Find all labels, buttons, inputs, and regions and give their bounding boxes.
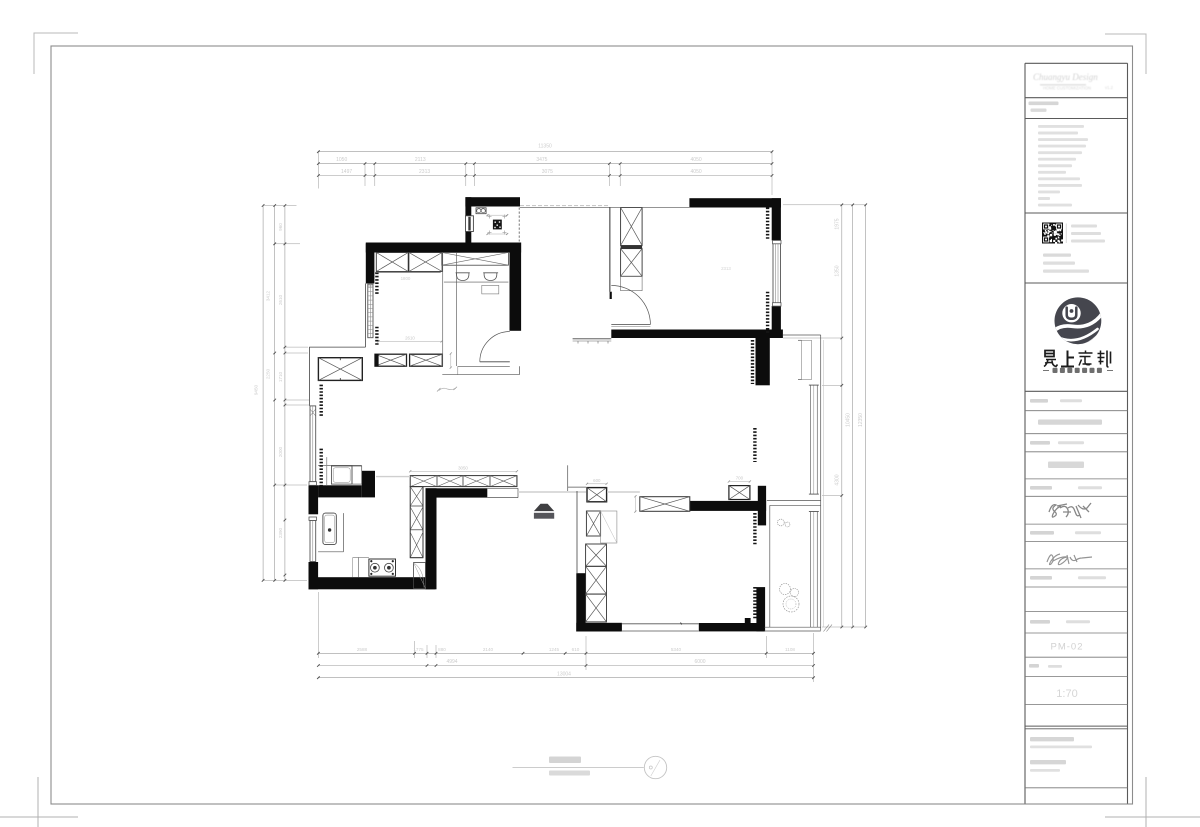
svg-text:2140: 2140: [483, 647, 494, 652]
svg-text:600: 600: [593, 478, 601, 483]
svg-text:13004: 13004: [557, 671, 571, 677]
svg-text:3075: 3075: [542, 169, 553, 175]
svg-text:4050: 4050: [691, 169, 702, 175]
svg-text:1245: 1245: [549, 647, 560, 652]
svg-text:2390: 2390: [278, 527, 283, 538]
svg-text:960: 960: [278, 223, 283, 231]
svg-text:1497: 1497: [341, 169, 352, 175]
svg-text:1775: 1775: [413, 647, 424, 652]
svg-text:4050: 4050: [691, 157, 702, 163]
svg-text:3050: 3050: [458, 465, 468, 470]
svg-text:11350: 11350: [538, 144, 552, 150]
svg-text:4994: 4994: [446, 659, 457, 665]
svg-text:1710: 1710: [278, 371, 283, 382]
svg-text:1350: 1350: [835, 265, 841, 276]
svg-text:2000: 2000: [278, 446, 283, 457]
svg-text:10450: 10450: [846, 413, 852, 427]
svg-text:2250: 2250: [266, 368, 271, 379]
svg-text:610: 610: [572, 647, 580, 652]
svg-text:2610: 2610: [405, 336, 415, 341]
svg-text:PM-02: PM-02: [1051, 642, 1084, 653]
svg-text:Chuangyu Design: Chuangyu Design: [1033, 72, 1098, 82]
svg-text:1975: 1975: [835, 218, 841, 229]
svg-text:2313: 2313: [721, 266, 731, 271]
svg-text:6000: 6000: [694, 659, 705, 665]
svg-text:1800: 1800: [401, 276, 411, 281]
svg-text:3475: 3475: [536, 157, 547, 163]
svg-text:2610: 2610: [278, 294, 283, 305]
svg-text:2588: 2588: [357, 647, 368, 652]
svg-text:v1.2: v1.2: [1105, 85, 1114, 90]
svg-text:700: 700: [736, 476, 744, 481]
svg-text:1:70: 1:70: [1056, 688, 1077, 700]
svg-text:1108: 1108: [785, 647, 795, 652]
svg-text:3412: 3412: [266, 290, 271, 301]
svg-text:4300: 4300: [835, 474, 841, 485]
svg-text:5340: 5340: [671, 647, 682, 652]
svg-text:2113: 2113: [415, 157, 426, 163]
svg-text:9450: 9450: [254, 384, 259, 395]
svg-text:12350: 12350: [858, 413, 864, 427]
svg-text:880: 880: [438, 647, 446, 652]
svg-text:1050: 1050: [336, 157, 347, 163]
svg-text:HOME CUSTOMIZATION: HOME CUSTOMIZATION: [1043, 86, 1091, 91]
svg-text:2313: 2313: [419, 169, 430, 175]
